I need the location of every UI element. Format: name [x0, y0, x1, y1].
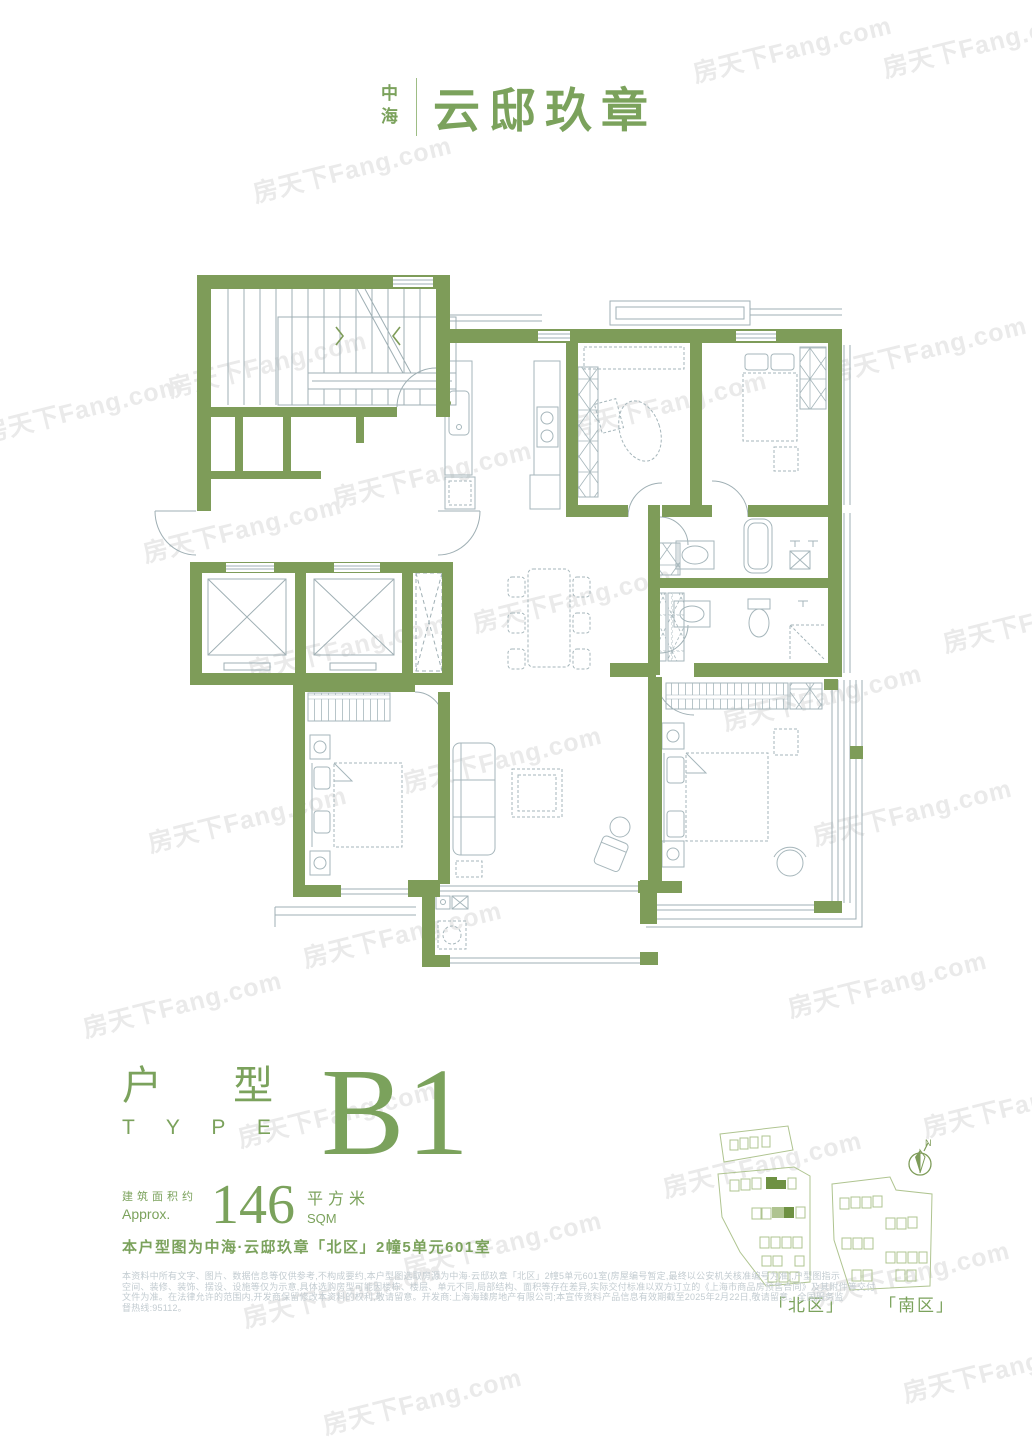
area-unit-en: SQM [307, 1211, 370, 1226]
living-room [453, 743, 630, 877]
type-code: B1 [321, 1062, 471, 1165]
bathroom-2 [674, 599, 824, 659]
balcony-laundry [436, 896, 468, 949]
walls [190, 275, 863, 967]
brand-divider [416, 78, 417, 136]
area-value: 146 [211, 1183, 295, 1228]
brand-logo-main: 云邸玖章 [433, 72, 657, 141]
compass-north-letter: N [925, 1138, 932, 1148]
disclaimer-line-1: 本资料中所有文字、图片、数据信息等仅供参考,不构成要约,本户型图选取房源为中海·… [122, 1271, 892, 1282]
master-bedroom [662, 683, 822, 876]
disclaimer-line-3: 文件为准。在法律允许的范围内,开发商保留修改本资料的权利,敬请留意。开发商:上海… [122, 1292, 892, 1303]
area-approx-cn: 建筑面积约 [122, 1188, 197, 1204]
disclaimer-line-4: 督热线:95112。 [122, 1303, 892, 1314]
stairwell [228, 289, 456, 406]
watermark-text: 房天下Fang.com [939, 576, 1032, 660]
watermark-text: 房天下Fang.com [899, 1326, 1032, 1410]
kitchen [445, 361, 560, 509]
area-approx-en: Approx. [122, 1206, 197, 1222]
exterior-lines [155, 301, 862, 963]
type-label-cn: 户 型 [122, 1062, 303, 1110]
dining-area [508, 569, 590, 669]
disclaimer-line-2: 空间、装修、装饰、摆设、设施等仅为示意,具体选购房型可能因楼栋、楼层、单元不同,… [122, 1282, 892, 1293]
unit-caption: 本户型图为中海·云邸玖章「北区」2幢5单元601室 [122, 1236, 491, 1257]
disclaimer: 本资料中所有文字、图片、数据信息等仅供参考,不构成要约,本户型图选取房源为中海·… [122, 1271, 892, 1313]
area-block: 建筑面积约 Approx. 146 平方米 SQM [122, 1183, 370, 1228]
brand-logo-small: 中海 [375, 84, 400, 130]
floor-plan [150, 255, 890, 995]
bedroom-top-right [743, 347, 826, 471]
area-unit-cn: 平方米 [307, 1185, 370, 1209]
bedroom-top-middle [578, 347, 684, 497]
type-block: 户 型 T Y P E B1 [122, 1062, 471, 1165]
bathroom-1 [676, 519, 818, 573]
bedroom-bottom-left [308, 693, 402, 875]
header: 中海 云邸玖章 [0, 72, 1032, 141]
type-label-en: T Y P E [122, 1116, 303, 1140]
highlighted-buildings [766, 1177, 794, 1218]
